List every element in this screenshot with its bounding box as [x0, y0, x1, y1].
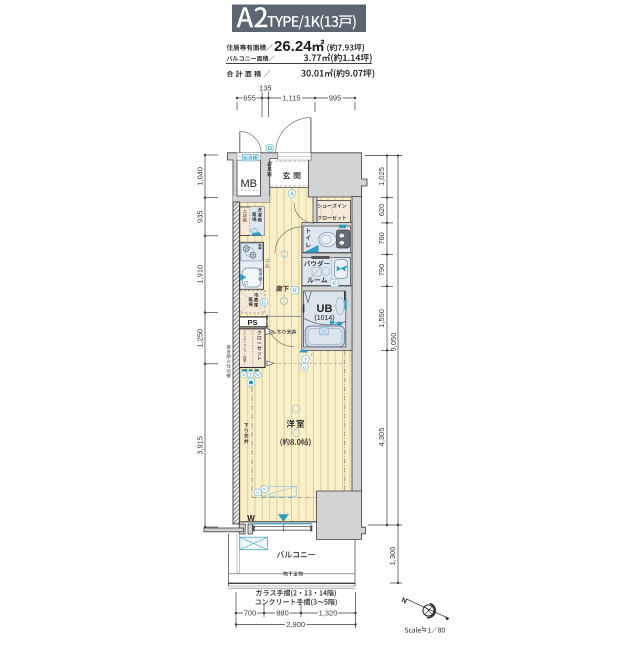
svg-text:135: 135 — [259, 83, 272, 92]
svg-text:PS: PS — [247, 318, 257, 327]
svg-text:UB: UB — [317, 303, 333, 315]
svg-text:4,305: 4,305 — [377, 428, 386, 447]
svg-text:935: 935 — [196, 210, 205, 223]
svg-text:1,300: 1,300 — [388, 547, 397, 566]
svg-text:A: A — [290, 192, 294, 198]
svg-text:1,550: 1,550 — [377, 309, 386, 328]
svg-text:AC: AC — [263, 487, 267, 491]
svg-text:760: 760 — [377, 232, 386, 245]
svg-text:1,040: 1,040 — [196, 167, 205, 186]
svg-text:U: U — [256, 372, 259, 377]
svg-text:700: 700 — [244, 609, 257, 618]
svg-text:1,250: 1,250 — [196, 329, 205, 348]
svg-text:MB: MB — [240, 178, 257, 190]
svg-text:W: W — [247, 514, 255, 523]
svg-text:K: K — [333, 281, 337, 287]
svg-text:9,050: 9,050 — [389, 333, 398, 352]
svg-text:R: R — [293, 288, 297, 294]
svg-text:620: 620 — [377, 204, 386, 217]
svg-text:U: U — [303, 365, 306, 370]
svg-text:1,910: 1,910 — [196, 265, 205, 284]
svg-text:U: U — [242, 372, 245, 377]
svg-text:880: 880 — [276, 609, 289, 618]
svg-text:(K-1): (K-1) — [264, 258, 269, 268]
svg-text:T: T — [249, 372, 252, 377]
svg-text:1,115: 1,115 — [282, 94, 300, 103]
svg-text:26.24: 26.24 — [274, 38, 312, 55]
svg-text:790: 790 — [377, 264, 386, 277]
svg-text:995: 995 — [329, 94, 342, 103]
svg-text:T: T — [304, 357, 307, 362]
svg-text:3,915: 3,915 — [196, 436, 205, 455]
svg-text:655: 655 — [243, 94, 256, 103]
svg-text:G: G — [262, 300, 266, 306]
svg-text:AC: AC — [256, 490, 260, 494]
svg-text:1,025: 1,025 — [377, 167, 386, 186]
svg-text:1,320: 1,320 — [319, 609, 338, 618]
svg-text:2,900: 2,900 — [286, 620, 305, 629]
